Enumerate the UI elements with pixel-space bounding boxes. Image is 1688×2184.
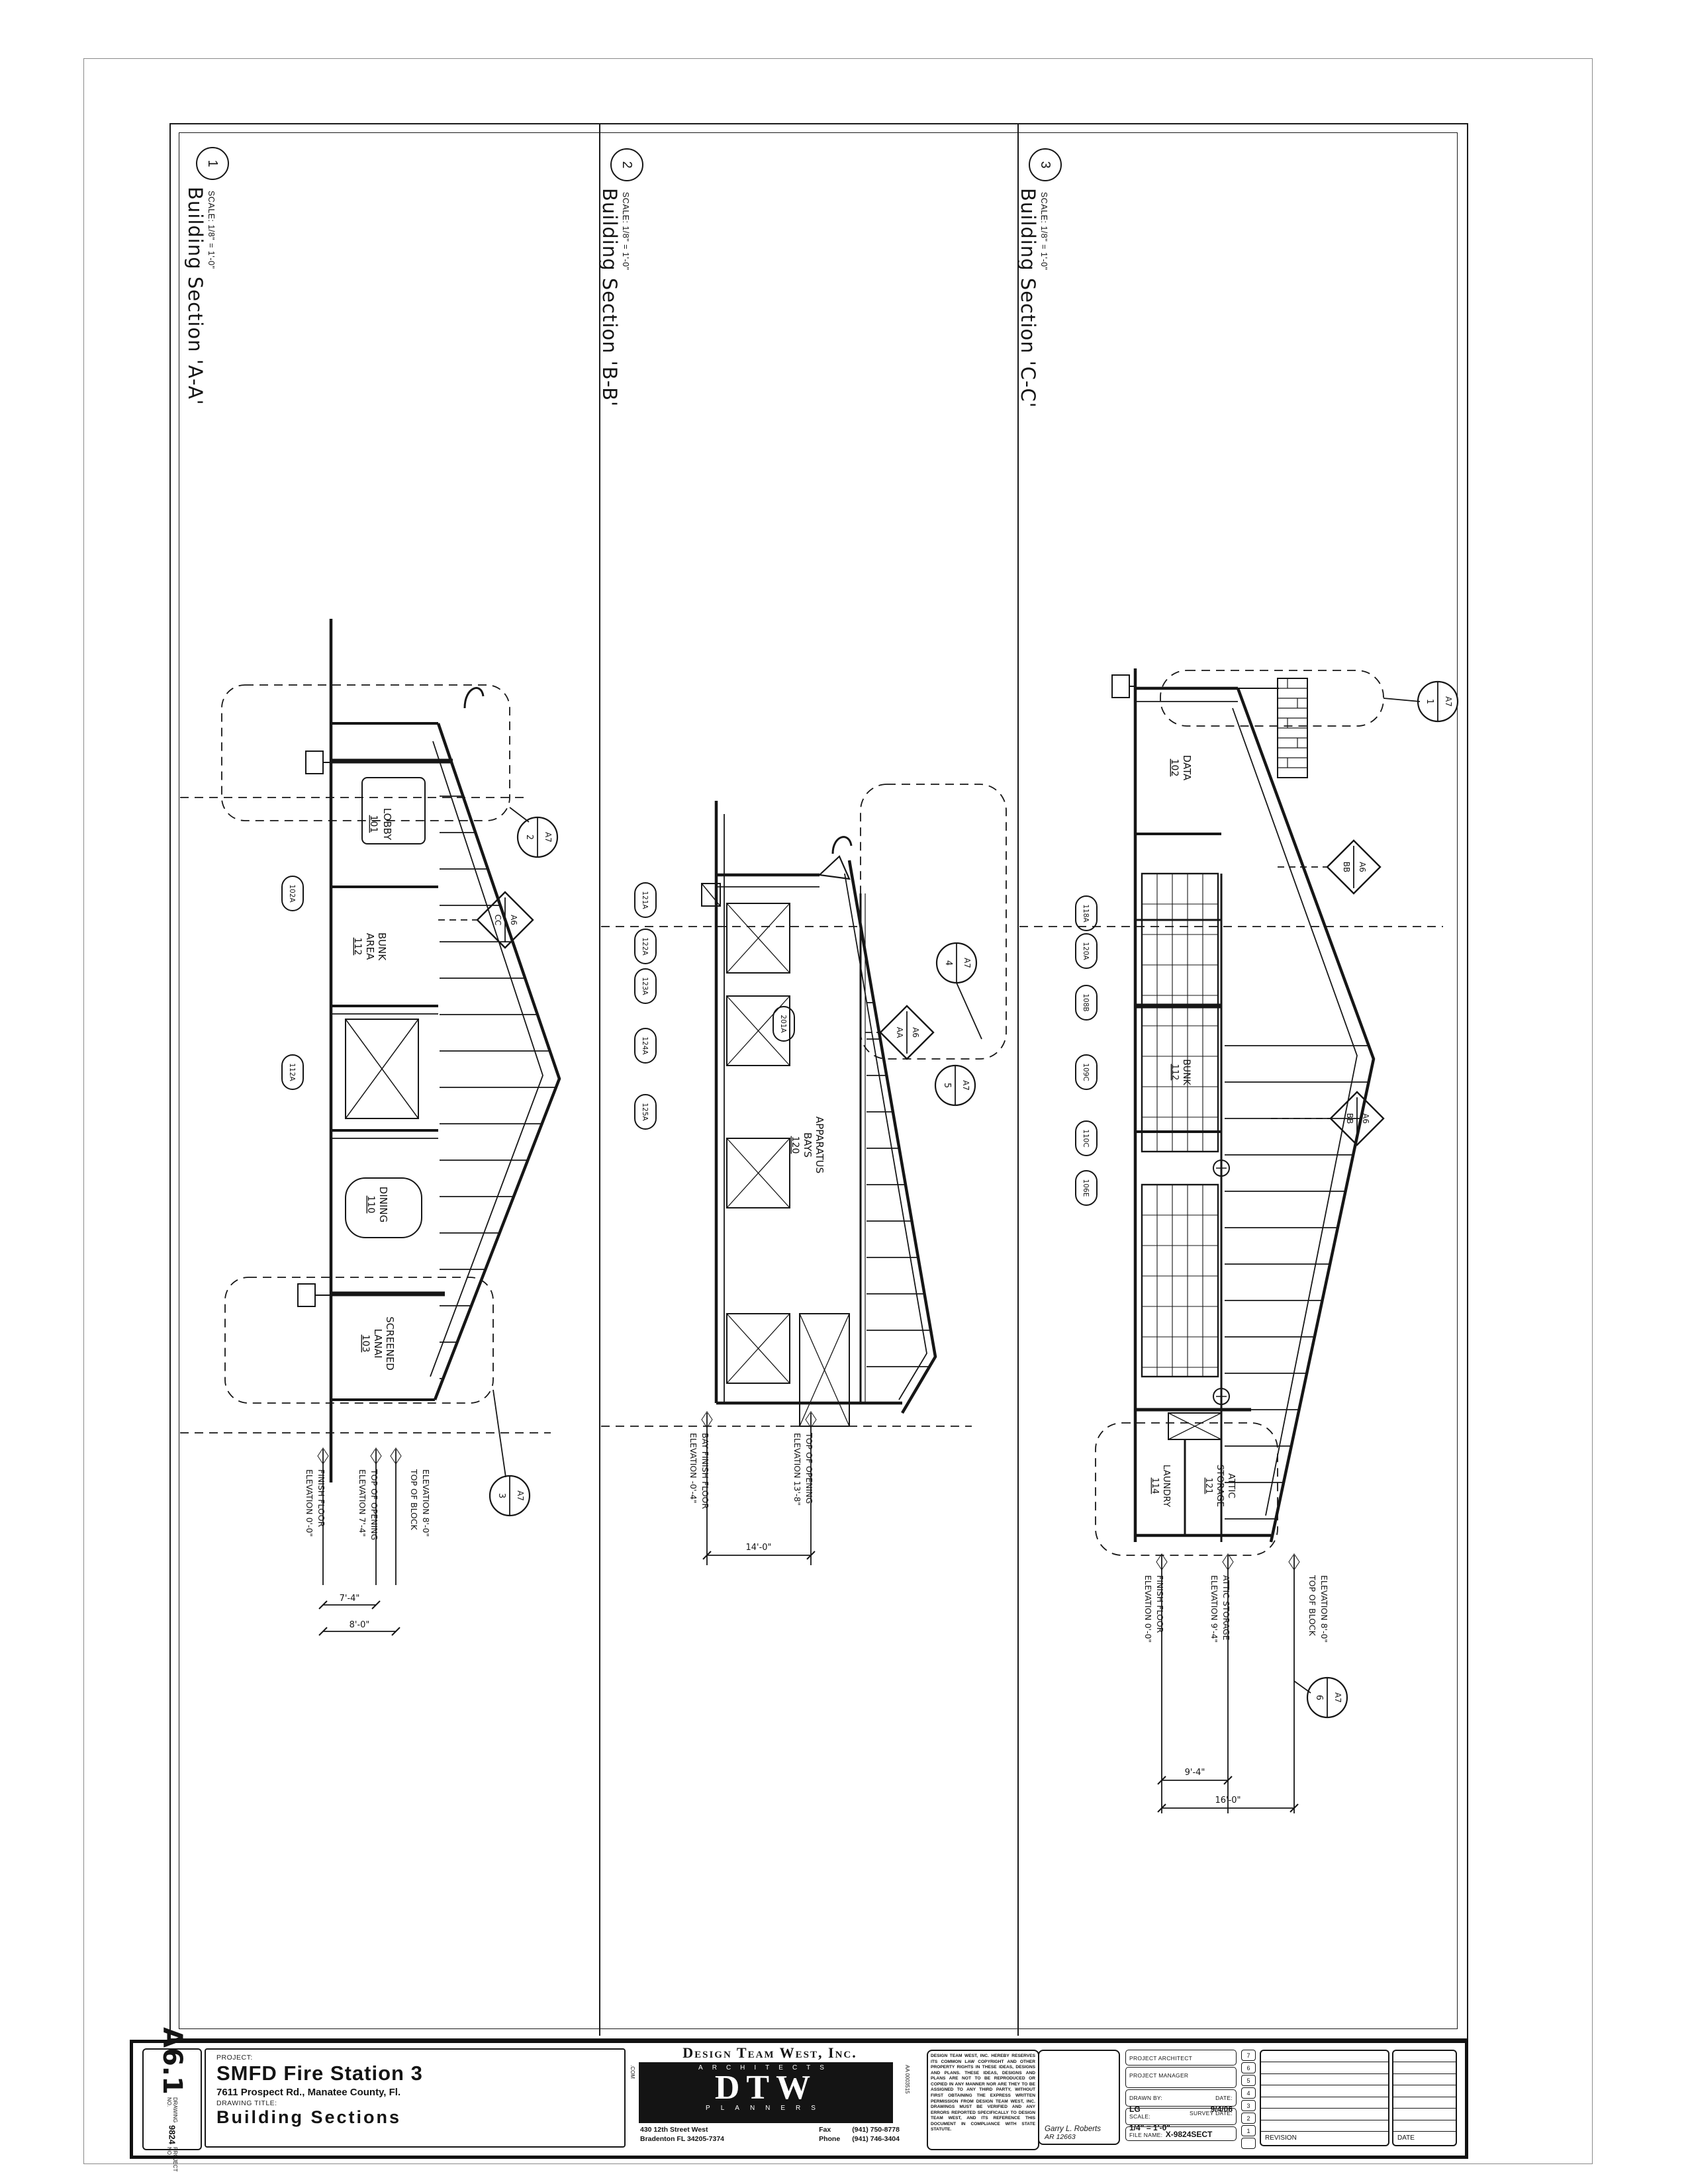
- firm-fax: (941) 750-8778: [852, 2125, 900, 2134]
- project-label: PROJECT:: [216, 2054, 624, 2062]
- title-block: A6.1 DRAWING NO. 9824 PROJECT NO. PROJEC…: [130, 2040, 1468, 2159]
- firm-phone: (941) 746-3404: [852, 2134, 900, 2144]
- room-label: APPARATUS: [814, 1116, 825, 1173]
- room-label: LOBBY: [381, 808, 393, 841]
- architect-license: AR 12663: [1045, 2133, 1113, 2141]
- fields-column: PROJECT ARCHITECT PROJECT MANAGER DRAWN …: [1125, 2050, 1237, 2146]
- drawing-title: Building Sections: [216, 2107, 624, 2128]
- section-ref-sheet: A6: [1358, 862, 1367, 872]
- elevation-note: ELEVATION 0'-0": [1143, 1575, 1153, 1643]
- opening-tag: 124A: [641, 1036, 649, 1055]
- project-manager-label: PROJECT MANAGER: [1129, 2072, 1188, 2079]
- elevation-note: ELEVATION 7'-4": [357, 1469, 367, 1537]
- date-header: DATE: [1393, 2132, 1456, 2145]
- section-header-3: Building Section 'C-C' SCALE: 1/8" = 1'-…: [1017, 188, 1078, 559]
- field-project-manager: PROJECT MANAGER: [1125, 2067, 1237, 2088]
- detail-ref-number: 3: [496, 1493, 506, 1498]
- section-ref-number: BB: [1345, 1113, 1354, 1124]
- file-name-value: X-9824SECT: [1166, 2130, 1213, 2139]
- room-label: DINING: [377, 1187, 389, 1222]
- revision-number: 4: [1241, 2087, 1256, 2099]
- section-number-badge-2: 2: [610, 148, 643, 181]
- section-ref-sheet: A6: [911, 1027, 920, 1038]
- dimension: 8'-0": [350, 1620, 370, 1630]
- disclaimer: DESIGN TEAM WEST, INC. HEREBY RESERVES I…: [927, 2050, 1039, 2150]
- section-title-2: Building Section 'B-B': [598, 188, 621, 559]
- revision-header: REVISION: [1261, 2132, 1388, 2145]
- room-label: LAUNDRY: [1161, 1465, 1172, 1508]
- elevation-note: FINISH FLOOR: [316, 1469, 326, 1527]
- drawing-title-label: DRAWING TITLE:: [216, 2099, 624, 2107]
- elevation-note: ELEVATION 8'-0": [1319, 1575, 1329, 1643]
- project-number-label: PROJECT NO.: [166, 2147, 178, 2171]
- firm-side-left: .COM: [630, 2065, 635, 2120]
- detail-ref-number: 4: [943, 960, 953, 966]
- date-label: DATE:: [1215, 2095, 1233, 2101]
- firm-logo-letters: DTW: [639, 2071, 893, 2105]
- detail-ref-sheet: A7: [516, 1490, 525, 1501]
- room-number: 112: [352, 938, 363, 956]
- section-number-badge-3: 3: [1029, 148, 1062, 181]
- elevation-note: TOP OF OPENING: [804, 1432, 814, 1504]
- detail-ref-sheet: A7: [1333, 1692, 1342, 1703]
- opening-tag: 109C: [1082, 1063, 1090, 1081]
- date-column: DATE: [1392, 2050, 1457, 2146]
- detail-ref-sheet: A7: [543, 832, 553, 842]
- firm-phone-label: Phone: [819, 2134, 840, 2144]
- drawing-number-label: DRAWING NO.: [166, 2097, 178, 2122]
- field-scale: SCALE: 1/4" = 1'-0" SURVEY DATE:: [1125, 2108, 1237, 2125]
- field-project-architect: PROJECT ARCHITECT: [1125, 2050, 1237, 2066]
- dimension: 16'-0": [1215, 1796, 1241, 1805]
- file-name-label: FILE NAME:: [1129, 2132, 1162, 2138]
- elevation-note: ELEVATION 8'-0": [421, 1469, 431, 1537]
- opening-tag: 122A: [641, 937, 649, 956]
- section-number-3: 3: [1038, 161, 1053, 168]
- room-label: ATTIC: [1226, 1473, 1237, 1498]
- room-number: 101: [368, 815, 379, 833]
- room-label: LANAI: [372, 1329, 384, 1359]
- room-number: 121: [1203, 1478, 1213, 1494]
- drawn-by-label: DRAWN BY:: [1129, 2095, 1162, 2101]
- detail-ref-sheet: A7: [962, 958, 972, 968]
- firm-logo: ARCHITECTS DTW PLANNERS: [639, 2062, 893, 2123]
- project-architect-label: PROJECT ARCHITECT: [1129, 2055, 1192, 2062]
- revision-column: REVISION: [1260, 2050, 1389, 2146]
- project-number: 9824: [167, 2125, 177, 2144]
- section-number-badge-1: 1: [196, 147, 229, 180]
- elevation-note: ATTIC STORAGE: [1221, 1575, 1231, 1641]
- field-drawn-by: DRAWN BY: LG DATE: 9/4/06: [1125, 2089, 1237, 2107]
- room-label: DATA: [1181, 755, 1193, 781]
- project-cell: PROJECT: SMFD Fire Station 3 7611 Prospe…: [205, 2048, 626, 2148]
- building-section-a-drawing: LOBBY 101 BUNK AREA 112 DINING 110 SCREE…: [180, 609, 597, 1694]
- revision-numbers: 7 6 5 4 3 2 1: [1241, 2050, 1256, 2150]
- section-scale-1: SCALE: 1/8" = 1'-0": [207, 191, 218, 557]
- section-number-2: 2: [620, 161, 635, 168]
- elevation-note: TOP OF OPENING: [369, 1469, 379, 1540]
- room-number: 114: [1150, 1478, 1160, 1494]
- opening-tag: 118A: [1082, 904, 1090, 923]
- elevation-note: FINISH FLOOR: [1155, 1575, 1165, 1633]
- section-ref-sheet: A6: [509, 915, 518, 925]
- revision-number: 2: [1241, 2113, 1256, 2124]
- elevation-note: BAY FINISH FLOOR: [700, 1433, 710, 1509]
- section-title-1: Building Section 'A-A': [184, 187, 207, 557]
- building-section-c-drawing: DATA 102 BUNK 112 LAUNDRY 114 ATTIC STOR…: [1019, 609, 1464, 1833]
- section-ref-number: BB: [1342, 862, 1351, 872]
- opening-tag: 106E: [1082, 1179, 1090, 1197]
- section-ref-number: AA: [895, 1027, 904, 1039]
- project-address: 7611 Prospect Rd., Manatee County, Fl.: [216, 2087, 624, 2098]
- field-file-name: FILE NAME: X-9824SECT: [1125, 2126, 1237, 2141]
- opening-tag: 125A: [641, 1103, 649, 1121]
- revision-number: 6: [1241, 2062, 1256, 2073]
- section-scale-3: SCALE: 1/8" = 1'-0": [1039, 192, 1051, 559]
- elevation-note: ELEVATION 9'-4": [1209, 1575, 1219, 1643]
- detail-ref-number: 5: [942, 1083, 952, 1088]
- room-number: 110: [365, 1196, 376, 1214]
- revision-number: 7: [1241, 2050, 1256, 2061]
- opening-tag: 110C: [1082, 1129, 1090, 1147]
- scale-label: SCALE:: [1129, 2113, 1150, 2120]
- opening-tag: 120A: [1082, 942, 1090, 960]
- detail-ref-number: 6: [1314, 1695, 1324, 1700]
- drawing-number-cell: A6.1 DRAWING NO. 9824 PROJECT NO.: [142, 2048, 202, 2150]
- firm-block: Design Team West, Inc. .COM ARCHITECTS D…: [630, 2044, 910, 2150]
- room-label: STORAGE: [1215, 1465, 1225, 1507]
- room-number: 120: [790, 1136, 800, 1154]
- revision-number-blank: [1241, 2138, 1256, 2149]
- elevation-note: ELEVATION 0'-0": [305, 1469, 314, 1537]
- firm-side-right: AA 0003515: [904, 2065, 910, 2120]
- section-number-1: 1: [205, 159, 220, 167]
- room-label: BUNK: [376, 933, 388, 961]
- room-label: SCREENED: [384, 1316, 396, 1371]
- section-scale-2: SCALE: 1/8" = 1'-0": [621, 192, 633, 559]
- room-number: 112: [1170, 1064, 1180, 1081]
- survey-date-label: SURVEY DATE:: [1190, 2110, 1233, 2123]
- elevation-note: ELEVATION -0'-4": [688, 1433, 698, 1504]
- elevation-note: ELEVATION 13'-8": [792, 1433, 802, 1506]
- drawing-number: A6.1: [157, 2027, 187, 2095]
- room-number: 102: [1169, 759, 1180, 777]
- room-label: BAYS: [802, 1132, 814, 1158]
- elevation-note: TOP OF BLOCK: [1307, 1574, 1317, 1637]
- opening-tag: 121A: [641, 891, 649, 909]
- opening-tag: 201A: [779, 1015, 787, 1033]
- firm-logo-bottom: PLANNERS: [639, 2105, 893, 2112]
- opening-tag: 123A: [641, 977, 649, 995]
- architect-name: Garry L. Roberts: [1045, 2125, 1113, 2133]
- opening-tag: 102A: [288, 884, 296, 903]
- revision-number: 1: [1241, 2125, 1256, 2136]
- signature-box: Garry L. Roberts AR 12663: [1038, 2050, 1120, 2145]
- firm-fax-label: Fax: [819, 2125, 840, 2134]
- dimension: 7'-4": [340, 1594, 360, 1604]
- detail-ref-number: 2: [524, 835, 534, 840]
- section-ref-sheet: A6: [1361, 1113, 1370, 1124]
- section-header-2: Building Section 'B-B' SCALE: 1/8" = 1'-…: [598, 188, 659, 559]
- revision-number: 5: [1241, 2075, 1256, 2086]
- dimension: 14'-0": [745, 1543, 771, 1553]
- drawing-sheet: 1 Building Section 'A-A' SCALE: 1/8" = 1…: [0, 0, 1688, 2184]
- section-ref-number: CC: [493, 915, 502, 926]
- revision-table: REVISION DATE: [1260, 2050, 1458, 2146]
- detail-ref-sheet: A7: [1444, 696, 1453, 707]
- opening-tag: 108B: [1082, 993, 1090, 1011]
- detail-ref-sheet: A7: [961, 1080, 970, 1091]
- building-section-b-drawing: 121A 122A 123A 124A 125A 201A APPARATUS …: [601, 774, 1015, 1588]
- room-label: BUNK: [1181, 1059, 1192, 1085]
- firm-address1: 430 12th Street West: [640, 2125, 724, 2134]
- elevation-note: TOP OF BLOCK: [409, 1469, 419, 1531]
- room-number: 103: [360, 1335, 371, 1353]
- opening-tag: 112A: [288, 1063, 296, 1081]
- firm-address2: Bradenton FL 34205-7374: [640, 2134, 724, 2144]
- dimension: 9'-4": [1185, 1768, 1205, 1778]
- detail-ref-number: 1: [1425, 699, 1434, 704]
- section-title-3: Building Section 'C-C': [1017, 188, 1039, 559]
- project-name: SMFD Fire Station 3: [216, 2062, 624, 2085]
- firm-name: Design Team West, Inc.: [630, 2044, 910, 2062]
- revision-number: 3: [1241, 2100, 1256, 2111]
- room-label: AREA: [364, 933, 376, 960]
- section-header-1: Building Section 'A-A' SCALE: 1/8" = 1'-…: [184, 187, 245, 557]
